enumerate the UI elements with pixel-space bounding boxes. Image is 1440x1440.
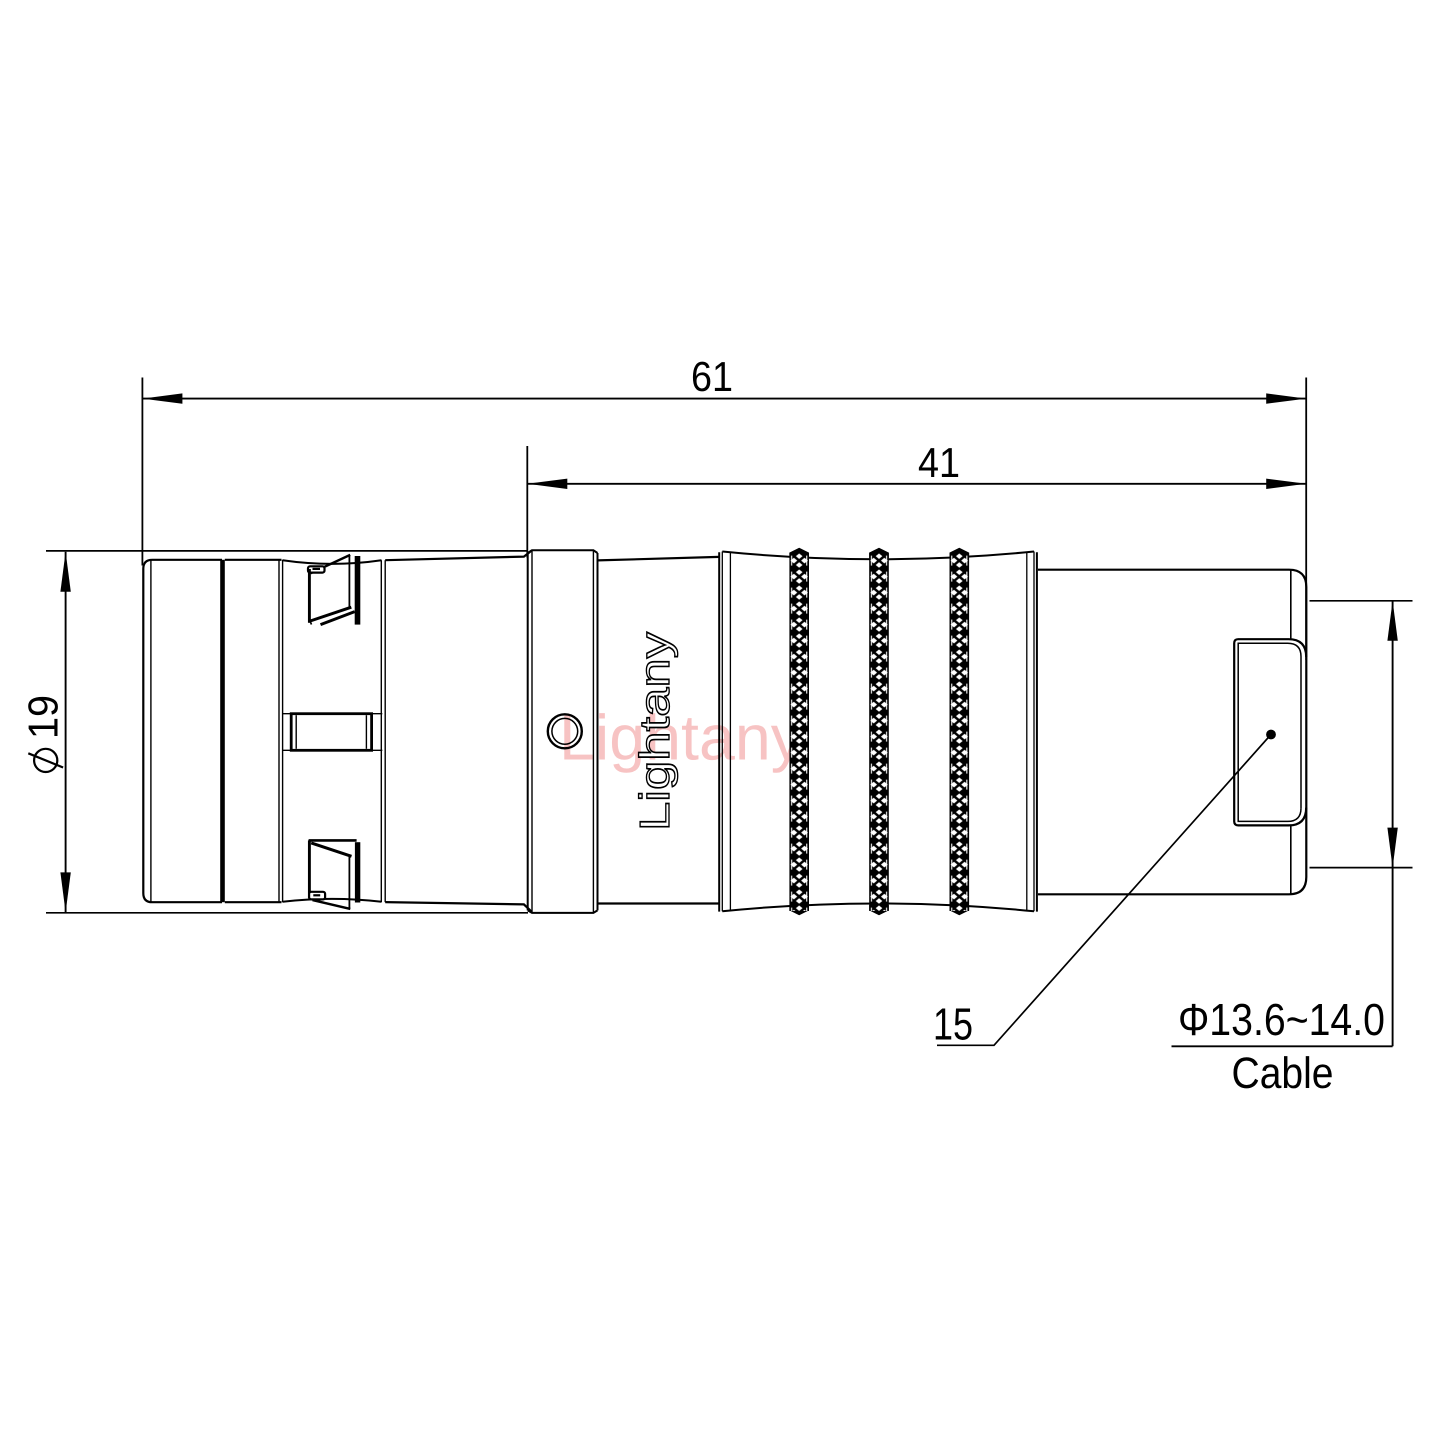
svg-text:Lightany: Lightany bbox=[559, 702, 803, 774]
svg-text:61: 61 bbox=[691, 353, 733, 400]
svg-text:Cable: Cable bbox=[1232, 1049, 1334, 1098]
svg-text:15: 15 bbox=[933, 999, 973, 1050]
svg-text:Lightany: Lightany bbox=[631, 632, 678, 831]
svg-text:19: 19 bbox=[20, 695, 67, 739]
svg-text:41: 41 bbox=[918, 439, 960, 486]
svg-text:Φ13.6~14.0: Φ13.6~14.0 bbox=[1178, 994, 1385, 1045]
